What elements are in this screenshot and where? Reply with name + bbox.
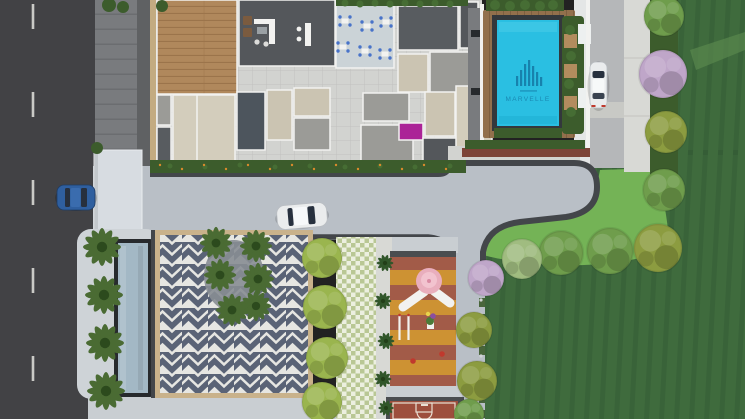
white-car-road: [588, 61, 610, 111]
room-magenta: [399, 123, 423, 140]
room-utility-1: [157, 95, 171, 125]
tree-pale-green: [502, 239, 542, 279]
sidewalk-strip: [95, 0, 158, 172]
tree-olive: [457, 361, 497, 401]
toy-red-2: [439, 351, 445, 357]
tree-olive: [634, 224, 682, 272]
blue-car: [55, 185, 97, 211]
court-surface: [390, 401, 458, 419]
roof-room: [398, 6, 458, 50]
grass-paver-path: [336, 237, 378, 419]
pool-mat-2: [471, 88, 480, 95]
dining-area: [336, 0, 394, 68]
deck-shrub: [156, 0, 168, 12]
shrub-ball: [302, 238, 342, 278]
planter-box-2: [564, 64, 577, 78]
tree-lilac: [468, 260, 504, 296]
site-plan-render: MARVELLE: [0, 0, 745, 419]
hall-beige: [173, 95, 235, 161]
wood-deck: [157, 0, 237, 94]
room-beige-2: [267, 90, 292, 140]
sofa-2: [269, 19, 275, 44]
room-speckled-3: [363, 93, 409, 121]
coffee-table: [257, 27, 267, 34]
pool-logo-text: MARVELLE: [506, 96, 551, 103]
room-utility-2: [157, 127, 171, 161]
planter-box: [564, 34, 577, 48]
site-plan-canvas: MARVELLE: [0, 0, 745, 419]
tree-green: [643, 169, 685, 211]
playground-border: [390, 251, 456, 257]
room-beige-4: [425, 92, 455, 136]
planting-strip: [137, 0, 151, 172]
tree-olive: [456, 312, 492, 348]
shrub-ball: [302, 382, 342, 419]
shrub-ball: [303, 285, 347, 329]
room-dark: [237, 92, 265, 150]
bench: [305, 23, 311, 46]
tree-green: [644, 0, 684, 36]
basketball-hoop: [421, 404, 428, 406]
room-beige-small: [398, 54, 428, 92]
planting-bed: [462, 148, 590, 157]
toy-red: [410, 358, 416, 364]
pool-hedge-bottom: [494, 128, 562, 138]
pool-mat: [471, 30, 480, 37]
logo-subline: [520, 90, 537, 92]
tree-green: [587, 228, 633, 274]
tree-olive: [645, 111, 687, 153]
room-speckled-2: [294, 118, 330, 150]
basketball-court: [386, 397, 464, 419]
room-beige-3: [294, 88, 330, 116]
tree-lilac: [639, 50, 687, 98]
pool-side-path: [468, 8, 482, 140]
shrub-ball: [306, 337, 348, 379]
tree-green: [539, 231, 583, 275]
entrance-canopy: [94, 150, 142, 236]
clubhouse-building: [156, 0, 492, 170]
sofa: [254, 19, 269, 24]
terrace-lounge: [239, 0, 335, 66]
